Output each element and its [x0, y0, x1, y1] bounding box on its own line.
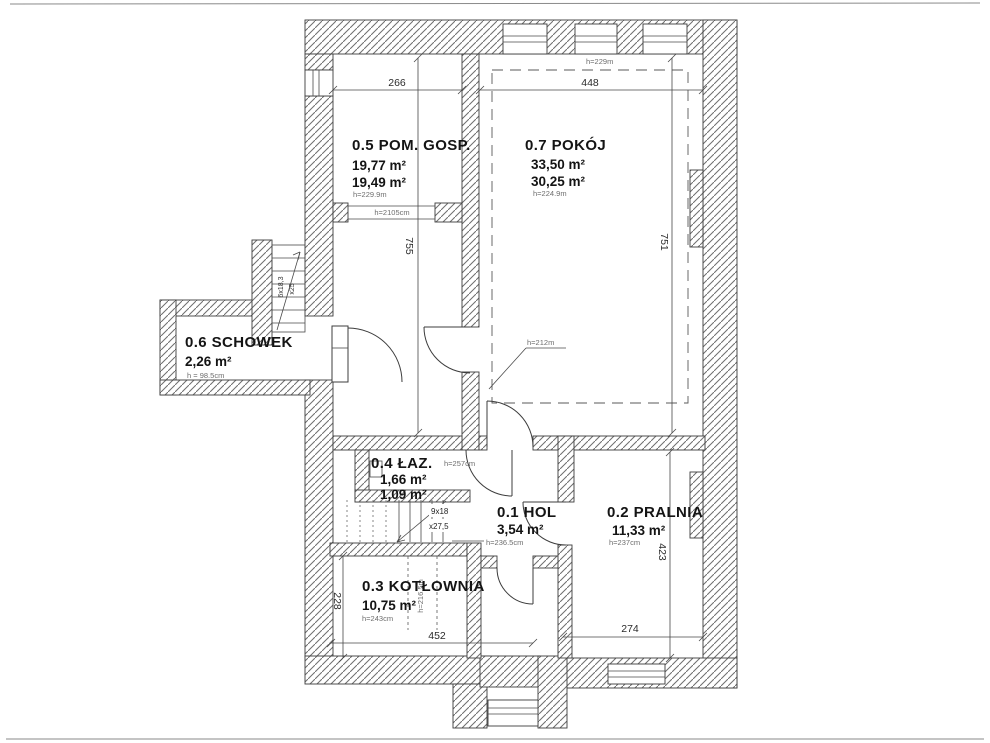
room-pokoj: 0.7 POKÓJ 33,50 m² 30,25 m² h=224.9m	[525, 136, 606, 198]
svg-text:1,09 m²: 1,09 m²	[380, 487, 427, 502]
svg-text:h=236.5cm: h=236.5cm	[486, 538, 523, 547]
wall-right	[703, 20, 737, 688]
svg-text:19,49 m²: 19,49 m²	[352, 175, 407, 190]
svg-text:228: 228	[331, 592, 343, 610]
wall-left	[305, 96, 333, 316]
svg-text:2,26 m²: 2,26 m²	[185, 354, 232, 369]
svg-text:0.1 HOL: 0.1 HOL	[497, 504, 556, 521]
attic-height-label: h=229m	[586, 57, 613, 66]
svg-text:h=224.9m: h=224.9m	[533, 189, 567, 198]
svg-text:h=237cm: h=237cm	[609, 538, 640, 547]
svg-text:0.6 SCHOWEK: 0.6 SCHOWEK	[185, 334, 293, 351]
window	[575, 24, 617, 54]
svg-text:274: 274	[621, 623, 639, 635]
passage-opening: h=2105cm	[348, 206, 435, 219]
svg-text:266: 266	[388, 77, 406, 89]
stairs-lower-label-1: 9x18	[431, 507, 449, 516]
passage-height-label: h=2105cm	[374, 208, 409, 217]
pralnia-wall	[558, 436, 574, 502]
window	[643, 24, 687, 54]
wall-bottom-left	[305, 656, 490, 684]
svg-text:10,75 m²: 10,75 m²	[362, 598, 417, 613]
svg-text:0.4 ŁAZ.: 0.4 ŁAZ.	[371, 455, 433, 472]
dim-pralnia-depth: 423	[656, 448, 674, 662]
svg-text:h=212m: h=212m	[527, 338, 554, 347]
partition	[479, 436, 487, 450]
window	[488, 700, 538, 726]
pralnia-wall	[558, 545, 572, 658]
lobby-wall	[481, 556, 497, 568]
scan-borders	[6, 3, 984, 739]
porch-wall	[480, 656, 540, 687]
svg-text:30,25 m²: 30,25 m²	[531, 174, 586, 189]
svg-text:h = 98.5cm: h = 98.5cm	[187, 371, 224, 380]
window	[305, 70, 333, 96]
room-pom-gosp: 0.5 POM. GOSP. 19,77 m² 19,49 m² h=229.9…	[352, 137, 471, 199]
partition	[330, 543, 467, 556]
svg-text:h=229.9m: h=229.9m	[353, 190, 387, 199]
dim-pom-gosp-width: 266	[329, 77, 466, 94]
door-height-callout: h=212m	[489, 338, 566, 389]
floor-plan-svg: h=2105cm	[0, 0, 990, 743]
window	[608, 664, 665, 684]
wall-left	[305, 380, 333, 658]
pomgosp-pokoj-door	[424, 327, 470, 373]
partition	[333, 436, 462, 450]
svg-text:19,77 m²: 19,77 m²	[352, 158, 407, 173]
chimney	[690, 170, 703, 247]
svg-text:1,66 m²: 1,66 m²	[380, 472, 427, 487]
stairs-upper-label-2: x25	[289, 283, 296, 294]
svg-text:452: 452	[428, 630, 446, 642]
dim-pom-gosp-depth: 755	[403, 54, 422, 437]
room-pralnia: 0.2 PRALNIA 11,33 m² h=237cm	[607, 504, 703, 547]
room-schowek: 0.6 SCHOWEK 2,26 m² h = 98.5cm	[185, 334, 293, 380]
dim-pralnia-width: 274	[559, 623, 707, 641]
partition	[435, 203, 462, 222]
laz-door	[466, 450, 512, 496]
lobby-door	[497, 568, 533, 604]
stairs-lower-label-2: x27,5	[429, 522, 449, 531]
stairs-upper-label-1: 6x18,3	[278, 276, 285, 297]
svg-text:h=257cm: h=257cm	[444, 459, 475, 468]
wall-left	[305, 54, 333, 70]
schowek-door	[332, 326, 402, 382]
stairs-lower: 9x18 x27,5	[347, 500, 462, 542]
window	[503, 24, 547, 54]
svg-text:h=243cm: h=243cm	[362, 614, 393, 623]
pokoj-door	[487, 401, 533, 447]
partition	[333, 203, 348, 222]
porch-wall	[538, 656, 567, 728]
dim-pokoj-depth: 751	[658, 54, 676, 437]
porch-wall	[453, 684, 487, 728]
svg-text:3,54 m²: 3,54 m²	[497, 522, 544, 537]
partition	[462, 54, 479, 327]
dim-kotlownia-width: 452	[327, 630, 537, 647]
svg-text:11,33 m²: 11,33 m²	[612, 523, 666, 538]
svg-text:33,50 m²: 33,50 m²	[531, 157, 586, 172]
svg-text:0.2 PRALNIA: 0.2 PRALNIA	[607, 504, 703, 521]
svg-text:448: 448	[581, 77, 599, 89]
svg-text:0.5 POM. GOSP.: 0.5 POM. GOSP.	[352, 137, 471, 154]
kotlownia-wall	[467, 543, 481, 658]
partition	[462, 372, 479, 450]
walls	[160, 20, 737, 728]
svg-text:0.7 POKÓJ: 0.7 POKÓJ	[525, 136, 606, 154]
stairs-upper: 6x18,3 x25	[272, 245, 305, 332]
stair-side-wall	[252, 240, 272, 345]
svg-text:755: 755	[403, 237, 415, 255]
svg-text:0.3 KOTŁOWNIA: 0.3 KOTŁOWNIA	[362, 578, 485, 595]
svg-text:751: 751	[658, 233, 670, 251]
svg-text:423: 423	[656, 543, 668, 561]
schowek-wall	[160, 380, 310, 395]
floor-plan-page: h=2105cm	[0, 0, 990, 743]
